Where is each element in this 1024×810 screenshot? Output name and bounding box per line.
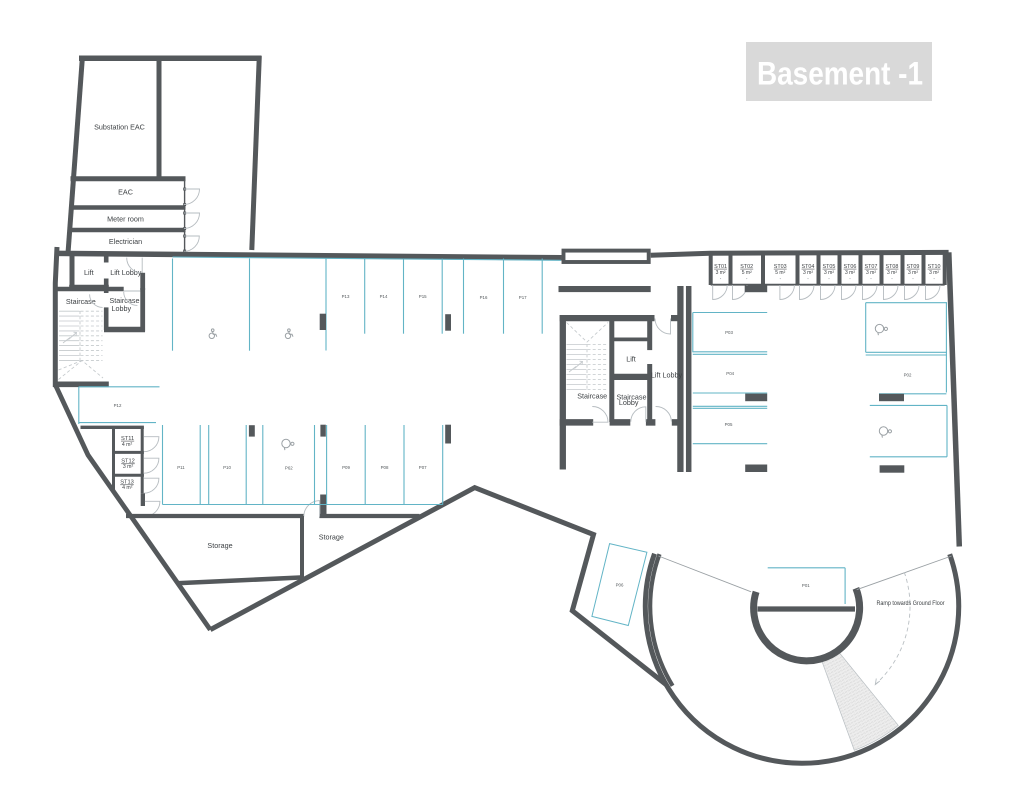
svg-text:3 m²: 3 m²: [824, 270, 834, 276]
svg-text:5 m²: 5 m²: [742, 270, 752, 276]
svg-text:3 m²: 3 m²: [803, 270, 813, 276]
svg-text:ST03: ST03: [774, 264, 787, 270]
svg-text:P14: P14: [380, 294, 388, 299]
svg-text:Lift: Lift: [84, 268, 94, 277]
svg-text:Basement -1: Basement -1: [757, 56, 923, 92]
svg-text:P04: P04: [726, 371, 734, 376]
svg-text:3 m²: 3 m²: [866, 270, 876, 276]
svg-text:Storage: Storage: [207, 541, 232, 550]
svg-text:3 m²: 3 m²: [887, 270, 897, 276]
svg-text:Substation EAC: Substation EAC: [94, 123, 145, 132]
svg-text:P06: P06: [616, 582, 624, 587]
svg-text:3 m²: 3 m²: [845, 270, 855, 276]
svg-text:ST07: ST07: [865, 264, 878, 270]
svg-text:ST05: ST05: [823, 264, 836, 270]
svg-text:ST01: ST01: [714, 264, 727, 270]
svg-text:Storage: Storage: [319, 532, 344, 541]
svg-text:5 m²: 5 m²: [775, 270, 785, 276]
svg-text:ST09: ST09: [907, 264, 920, 270]
svg-text:Meter room: Meter room: [107, 215, 144, 224]
svg-text:Lobby: Lobby: [619, 398, 639, 407]
svg-text:Lift Lobby: Lift Lobby: [651, 371, 683, 380]
svg-text:P13: P13: [342, 294, 350, 299]
svg-text:ST08: ST08: [886, 264, 899, 270]
svg-text:3 m²: 3 m²: [908, 270, 918, 276]
svg-text:Staircase: Staircase: [577, 392, 607, 401]
svg-text:P17: P17: [519, 295, 527, 300]
svg-text:Lift: Lift: [626, 355, 636, 364]
svg-text:Electrician: Electrician: [109, 237, 142, 246]
svg-text:P07: P07: [419, 465, 427, 470]
svg-text:ST10: ST10: [928, 264, 941, 270]
svg-text:P03: P03: [725, 330, 733, 335]
svg-text:P16: P16: [480, 295, 488, 300]
svg-text:3 m²: 3 m²: [929, 270, 939, 276]
svg-text:ST06: ST06: [844, 264, 857, 270]
svg-text:Lobby: Lobby: [112, 304, 132, 313]
svg-text:P09: P09: [342, 465, 350, 470]
svg-text:ST04: ST04: [802, 264, 815, 270]
svg-text:ST02: ST02: [740, 264, 753, 270]
svg-text:P08: P08: [381, 465, 389, 470]
svg-text:3 m²: 3 m²: [716, 270, 726, 276]
svg-text:P05: P05: [725, 422, 733, 427]
svg-text:P10: P10: [223, 465, 231, 470]
svg-text:P12: P12: [114, 403, 122, 408]
svg-text:P62: P62: [285, 465, 293, 470]
svg-text:4 m²: 4 m²: [122, 485, 133, 491]
svg-text:P01: P01: [802, 583, 810, 588]
svg-text:3 m²: 3 m²: [123, 464, 134, 470]
svg-text:P11: P11: [177, 465, 185, 470]
svg-text:EAC: EAC: [118, 188, 133, 197]
svg-text:P02: P02: [904, 372, 912, 377]
svg-text:4 m²: 4 m²: [122, 442, 133, 448]
svg-text:Ramp towards Ground Floor: Ramp towards Ground Floor: [877, 600, 946, 607]
svg-text:P15: P15: [419, 294, 427, 299]
